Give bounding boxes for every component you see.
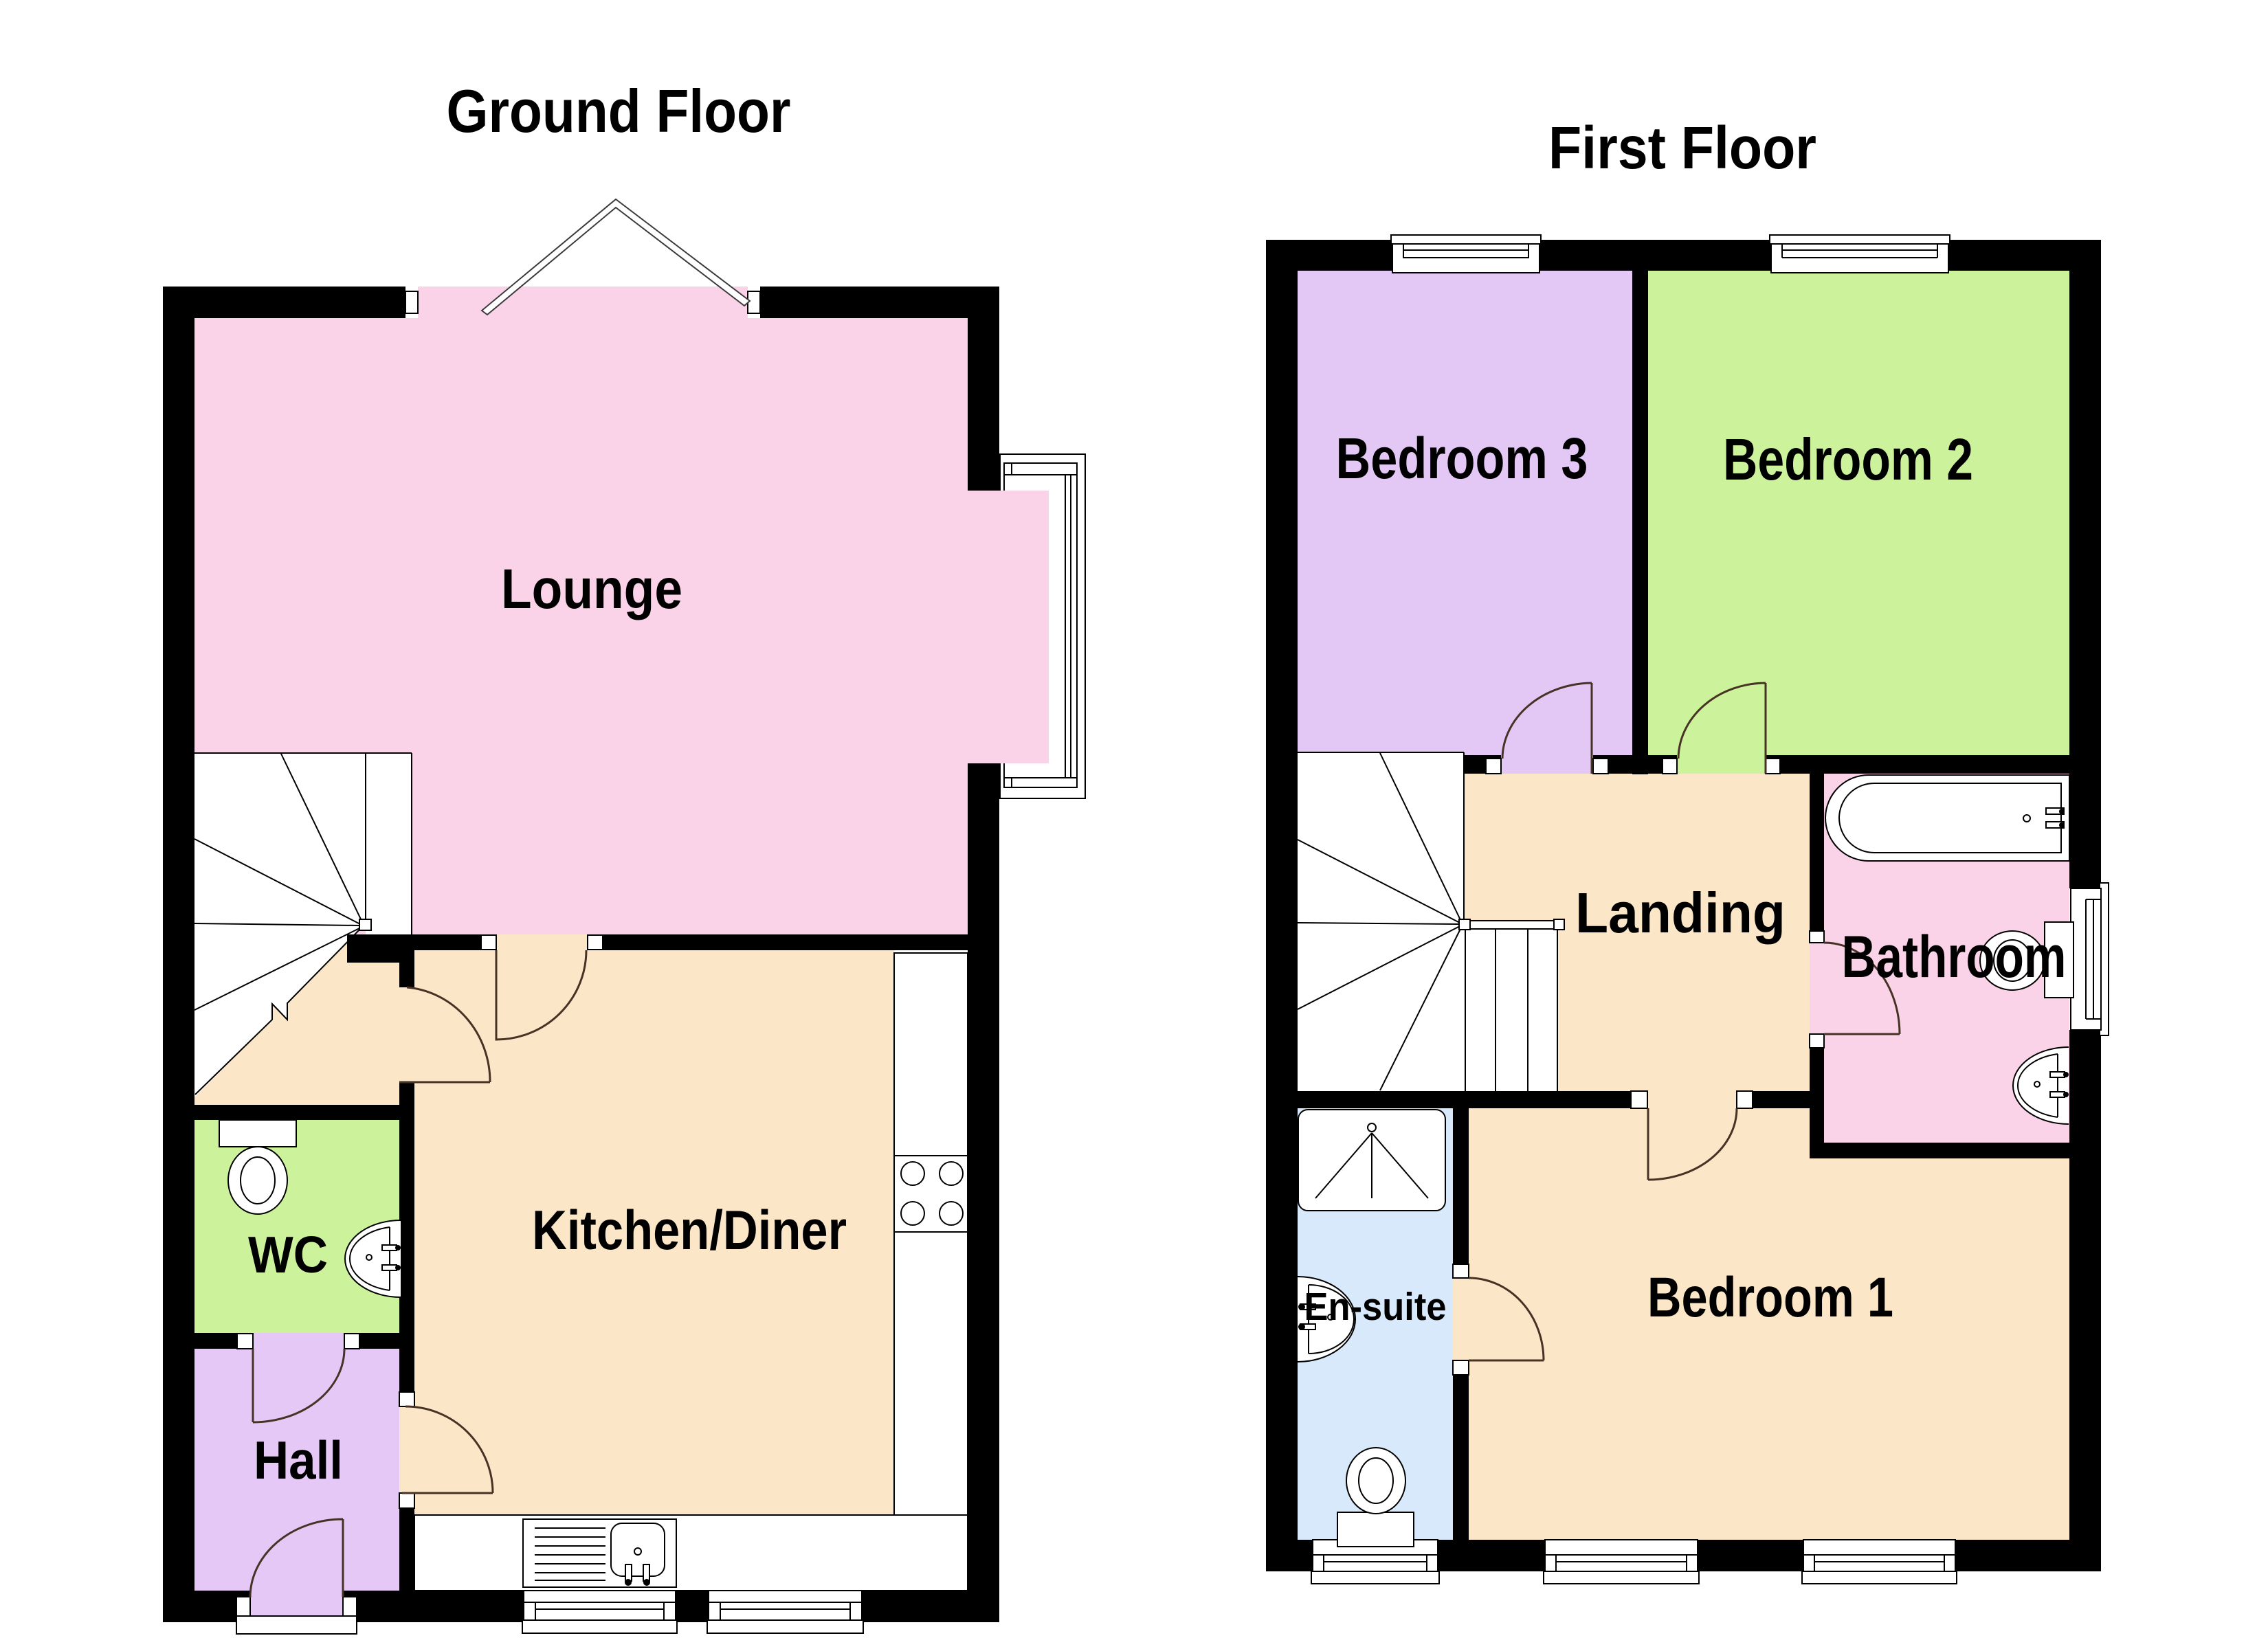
svg-text:Ground Floor: Ground Floor [447, 77, 791, 145]
svg-text:WC: WC [248, 1226, 328, 1283]
svg-text:Bedroom 3: Bedroom 3 [1336, 426, 1588, 491]
svg-text:Bathroom: Bathroom [1842, 924, 2067, 990]
svg-text:First Floor: First Floor [1548, 115, 1816, 181]
svg-text:Landing: Landing [1575, 881, 1786, 945]
svg-text:Bedroom 2: Bedroom 2 [1723, 427, 1973, 493]
svg-text:Bedroom 1: Bedroom 1 [1647, 1266, 1893, 1329]
svg-text:Kitchen/Diner: Kitchen/Diner [532, 1200, 847, 1261]
svg-text:En-suite: En-suite [1304, 1285, 1447, 1329]
svg-text:Hall: Hall [254, 1430, 343, 1490]
svg-text:Lounge: Lounge [501, 558, 682, 620]
